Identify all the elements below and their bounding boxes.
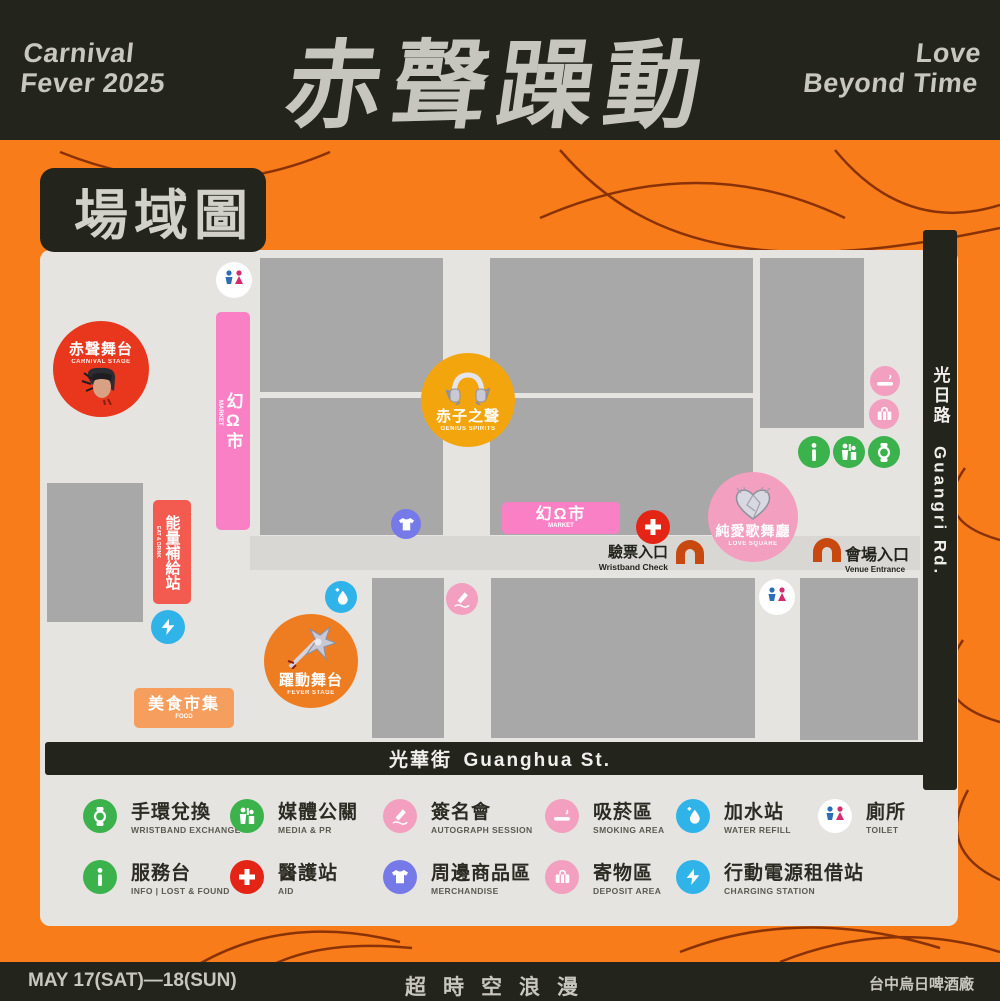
venue-entrance-sublabel: Venue Entrance — [845, 565, 909, 574]
silver-heart-icon — [733, 487, 773, 521]
legend-item-aid: 醫護站AID — [230, 858, 338, 896]
fever-stage-label: 躍動舞台 — [279, 669, 343, 690]
pure-voice-label: 赤子之聲 — [436, 405, 500, 426]
venue-entrance-label: 會場入口 — [845, 541, 909, 565]
media-icon — [833, 436, 865, 468]
love-square-sublabel: LOVE SQUARE — [728, 541, 777, 547]
autograph-icon — [383, 799, 417, 833]
info-icon — [83, 860, 117, 894]
map-block — [260, 258, 443, 392]
map-block — [47, 483, 143, 622]
tagline-line2: Beyond Time — [802, 68, 980, 98]
energy-station-marker: EAT & DRINK 能量補給站 — [153, 500, 191, 604]
scepter-icon — [286, 627, 336, 669]
legend-item-wristband-exchange: 手環兌換WRISTBAND EXCHANGE — [83, 797, 241, 835]
header-bar: Carnival Fever 2025 赤聲躁動 Love Beyond Tim… — [0, 0, 1000, 140]
charging-icon — [676, 860, 710, 894]
legend-item-autograph: 簽名會AUTOGRAPH SESSION — [383, 797, 533, 835]
market-horizontal-label: 幻Ω市 — [536, 507, 587, 523]
charging-icon — [151, 610, 185, 644]
event-map-poster: Carnival Fever 2025 赤聲躁動 Love Beyond Tim… — [0, 0, 1000, 1001]
info-icon — [798, 436, 830, 468]
love-square-label: 純愛歌舞廳 — [716, 521, 791, 541]
media-icon — [230, 799, 264, 833]
aid-icon — [230, 860, 264, 894]
love-square-marker: 純愛歌舞廳 LOVE SQUARE — [708, 472, 798, 562]
map-title-box: 場域圖 — [40, 168, 266, 252]
deposit-icon — [869, 399, 899, 429]
fever-stage-marker: 躍動舞台 FEVER STAGE — [264, 614, 358, 708]
smoking-icon — [870, 366, 900, 396]
event-tagline-right: Love Beyond Time — [802, 38, 983, 98]
map-block — [491, 578, 755, 738]
street-guanghua-label: 光華街 Guanghua St. — [389, 745, 611, 772]
legend-item-toilet: 廁所TOILET — [818, 797, 906, 835]
map-block — [490, 258, 753, 393]
street-guanghua: 光華街 Guanghua St. — [45, 742, 955, 775]
legend-item-charging: 行動電源租借站CHARGING STATION — [676, 858, 864, 896]
food-market-label: 美食市集 — [148, 696, 220, 714]
market-horizontal-sublabel: MARKET — [548, 523, 574, 529]
market-vertical-label: 幻Ω市 — [221, 392, 246, 451]
legend-item-info: 服務台INFO | LOST & FOUND — [83, 858, 230, 896]
legend-item-smoking: 吸菸區SMOKING AREA — [545, 797, 665, 835]
market-vertical-bar: MARKET 幻Ω市 — [216, 312, 250, 530]
merch-icon — [383, 860, 417, 894]
street-guangri: 光日路 Guangri Rd. — [923, 230, 957, 790]
wristband-check-label: 驗票入口 — [556, 541, 668, 562]
map-block — [800, 578, 918, 740]
market-horizontal-bar: 幻Ω市 MARKET — [502, 502, 620, 534]
water-icon — [325, 581, 357, 613]
headphones-icon — [446, 369, 490, 405]
smoking-icon — [545, 799, 579, 833]
legend-item-merch: 周邊商品區MERCHANDISE — [383, 858, 531, 896]
wristband-check-entrance: 驗票入口 Wristband Check — [556, 541, 668, 572]
wristband-check-sublabel: Wristband Check — [556, 562, 668, 572]
toilet-icon — [818, 799, 852, 833]
cyber-girl-portrait — [78, 365, 124, 405]
legend-item-media-pr: 媒體公關MEDIA & PR — [230, 797, 358, 835]
event-slogan: 超時空浪漫 — [0, 971, 1000, 1001]
fever-stage-sublabel: FEVER STAGE — [287, 690, 334, 696]
market-vertical-sublabel: MARKET — [217, 400, 223, 426]
map-block — [760, 258, 864, 428]
aid-icon — [636, 510, 670, 544]
autograph-icon — [446, 583, 478, 615]
street-guangri-label: 光日路 Guangri Rd. — [928, 366, 953, 790]
wristband-check-arch-icon — [676, 540, 704, 564]
wristband-icon — [868, 436, 900, 468]
food-market-sublabel: FOOD — [175, 714, 192, 720]
energy-station-sublabel: EAT & DRINK — [155, 526, 161, 558]
venue-entrance: 會場入口 Venue Entrance — [845, 541, 909, 574]
energy-station-label: 能量補給站 — [162, 515, 183, 590]
carnival-stage-marker: 赤聲舞台 CARNIVAL STAGE — [53, 321, 149, 417]
pure-voice-marker: 赤子之聲 GENIUS SPIRITS — [421, 353, 515, 447]
legend-item-water: 加水站WATER REFILL — [676, 797, 791, 835]
legend-item-deposit: 寄物區DEPOSIT AREA — [545, 858, 661, 896]
toilet-icon — [759, 579, 795, 615]
food-market-marker: 美食市集 FOOD — [134, 688, 234, 728]
event-venue: 台中烏日啤酒廠 — [869, 973, 974, 994]
toilet-icon — [216, 262, 252, 298]
map-title: 場域圖 — [40, 171, 254, 250]
venue-entrance-arch-icon — [813, 538, 841, 562]
deposit-icon — [545, 860, 579, 894]
tagline-line1: Love — [805, 38, 983, 68]
water-icon — [676, 799, 710, 833]
pure-voice-sublabel: GENIUS SPIRITS — [440, 426, 495, 432]
carnival-stage-label: 赤聲舞台 — [69, 338, 133, 359]
map-block — [372, 578, 444, 738]
wristband-icon — [83, 799, 117, 833]
merch-icon — [391, 509, 421, 539]
carnival-stage-sublabel: CARNIVAL STAGE — [71, 359, 130, 365]
